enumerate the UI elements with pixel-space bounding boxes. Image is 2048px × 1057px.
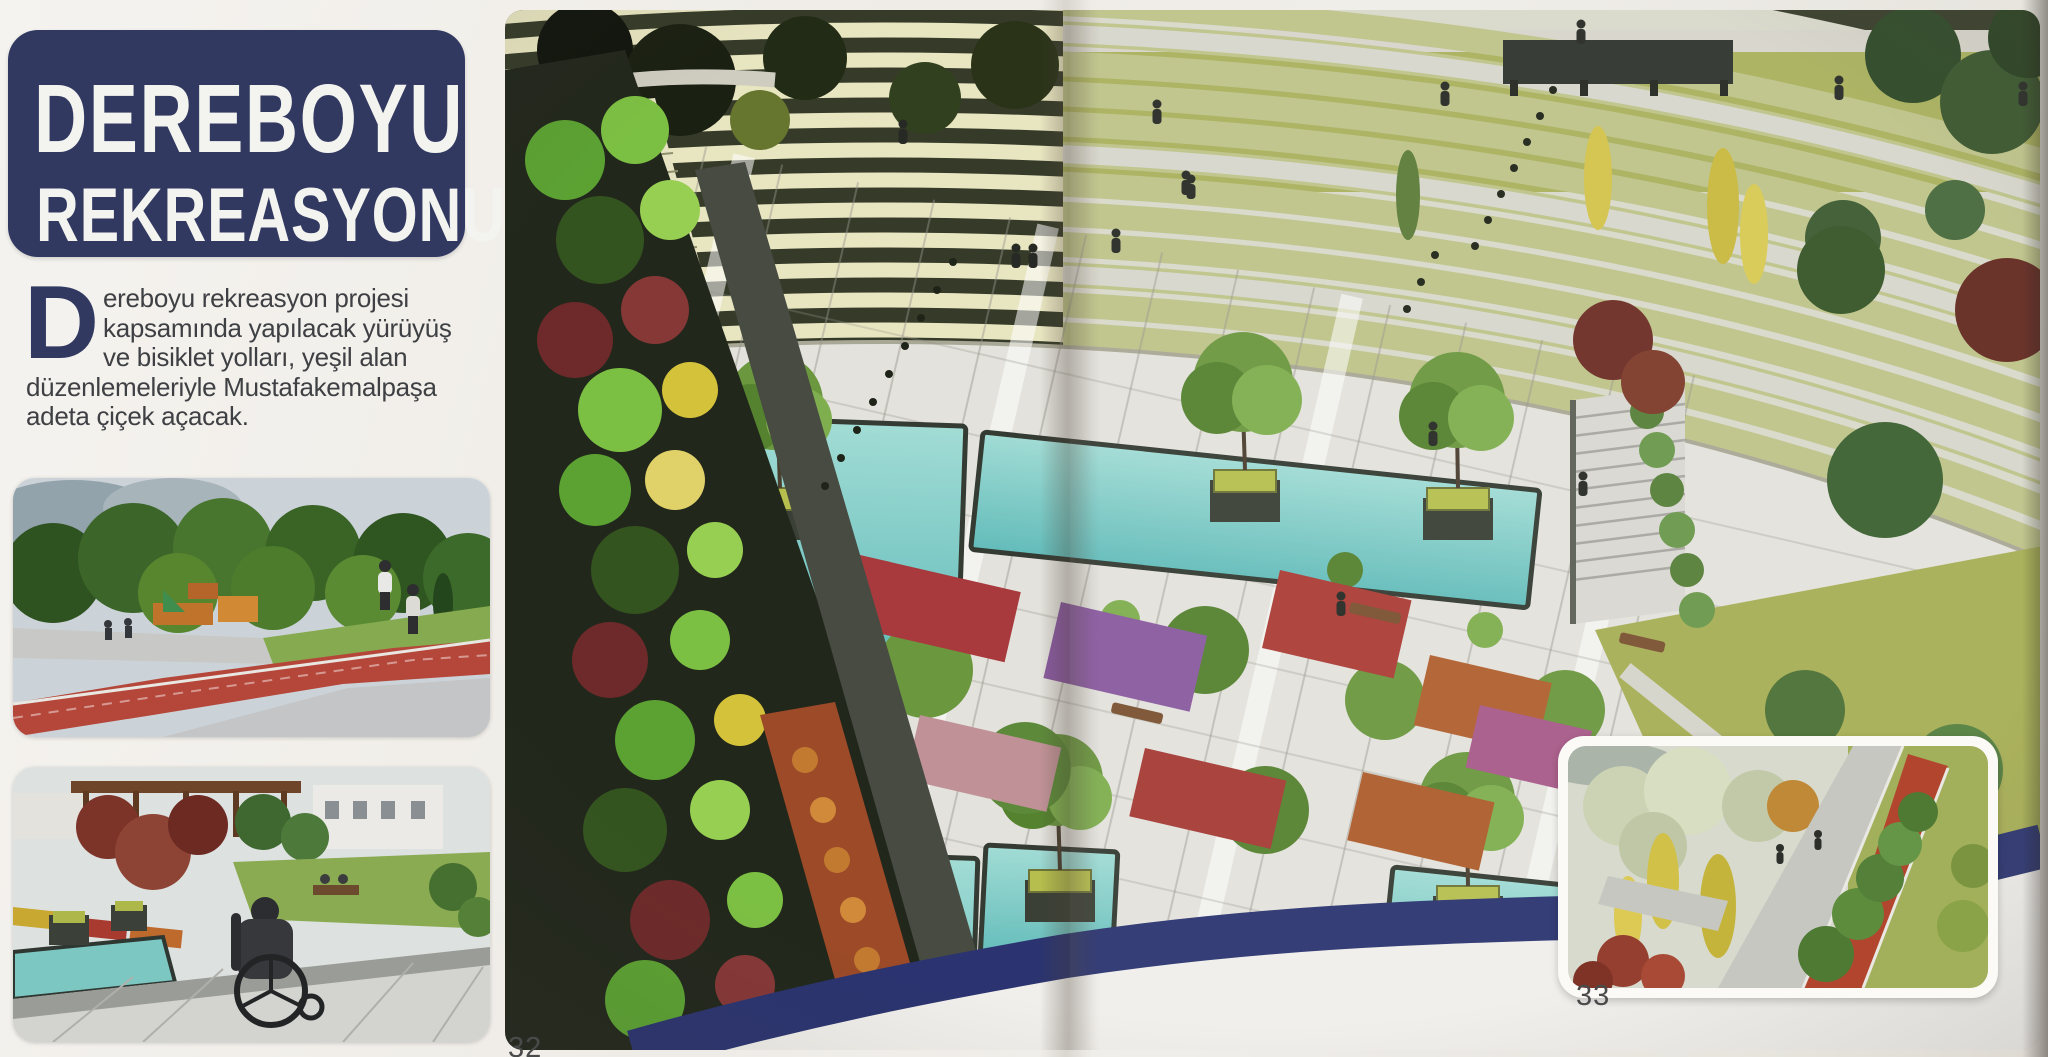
page-number-left: 32: [508, 1032, 542, 1057]
inset-photo-card: [1558, 736, 1998, 998]
page-title-line2: REKREASYONU: [36, 178, 506, 254]
park-walkway-photo: [13, 478, 490, 737]
page-title-line1: DEREBOYU: [34, 70, 464, 167]
plaza-pool-photo: [13, 767, 490, 1042]
article-text: D ereboyu rekreasyon projesi kapsamında …: [24, 284, 476, 432]
page-edge-shadow: [2022, 0, 2048, 1057]
article-line: ereboyu rekreasyon projesi: [103, 284, 476, 314]
magazine-spread: DEREBOYU REKREASYONU D ereboyu rekreasyo…: [0, 0, 2048, 1057]
article-line: kapsamında yapılacak yürüyüş: [103, 314, 476, 344]
spread-fold: [1040, 0, 1092, 1057]
title-card: DEREBOYU REKREASYONU: [8, 30, 465, 257]
aerial-path-photo: [1568, 746, 1988, 988]
page-number-right: 33: [1576, 980, 1610, 1013]
article-line: adeta çiçek açacak.: [26, 402, 476, 432]
article-line: ve bisiklet yolları, yeşil alan: [103, 343, 476, 373]
drop-cap: D: [24, 286, 99, 361]
